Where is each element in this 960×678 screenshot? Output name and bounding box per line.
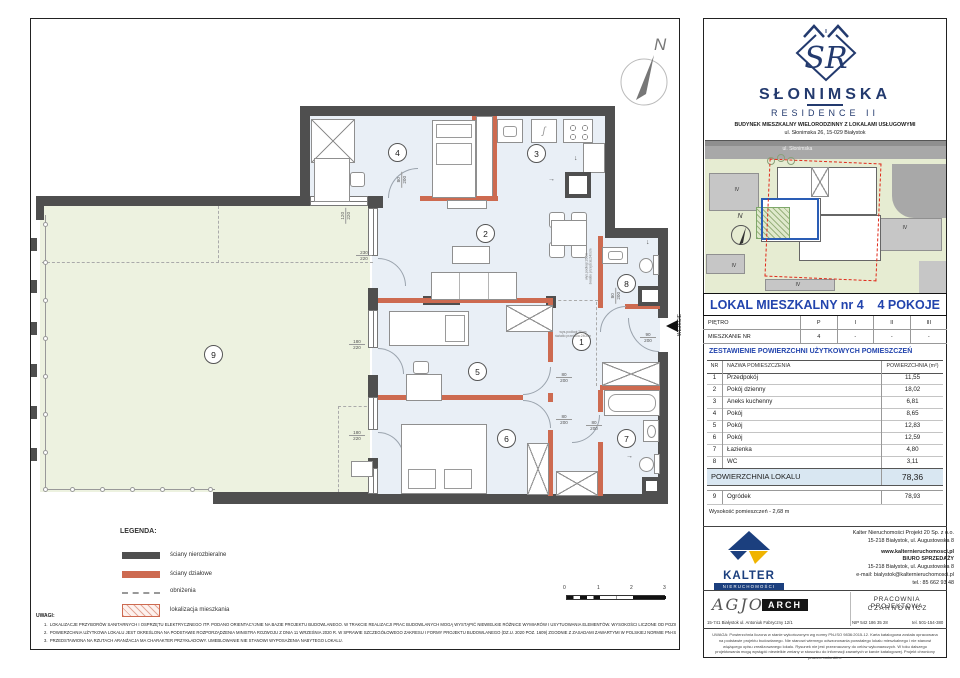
bathroom-sink [643, 420, 659, 442]
fence-post [31, 280, 37, 293]
dimension-label: 80200 [610, 288, 622, 304]
coffee-table [452, 246, 490, 264]
vent-arrow-icon: → [548, 176, 555, 183]
divider [703, 526, 947, 527]
legend-swatch-location [122, 604, 160, 617]
desk [314, 158, 350, 202]
vent-arrow-icon: → [626, 453, 633, 460]
building-description: BUDYNEK MIESZKALNY WIELORODZINNY Z LOKAL… [703, 122, 947, 128]
floor-cell: P [801, 316, 838, 329]
ventilation-shaft [642, 477, 661, 495]
legend-swatch-partition [122, 571, 160, 578]
contact-line: BIURO SPRZEDAŻY [853, 556, 954, 564]
unit-rooms: 4 POKOJE [877, 298, 940, 312]
tech-note: wys.podłogi:26cm światło przejścia:240cm [585, 243, 594, 289]
dim-bottom: 220 [349, 344, 365, 350]
stove [563, 119, 593, 143]
wardrobe [311, 119, 355, 163]
toilet-bowl [639, 258, 653, 273]
fence-post-dot [43, 450, 48, 455]
gray-building [709, 173, 759, 211]
dimension-label: 120220 [340, 208, 352, 224]
garden-name: Ogródek [723, 491, 881, 504]
sink-basin [608, 251, 623, 260]
area-table-title: ZESTAWIENIE POWIERZCHNI UŻYTKOWYCH POMIE… [709, 348, 912, 355]
table-row: PIĘTRO P I II III [703, 316, 947, 330]
block-label: IV [735, 187, 740, 193]
fridge [583, 143, 605, 173]
scale-bar [566, 595, 665, 600]
room-number: 6 [504, 434, 509, 444]
arch-logo: ARCH [762, 599, 808, 611]
logo-underline [807, 104, 843, 106]
bed [432, 120, 476, 198]
sr-monogram-logo: SR II [789, 22, 859, 84]
scale-tick [616, 596, 617, 599]
legend-swatch-structural [122, 552, 160, 559]
wall-segment [605, 106, 615, 236]
disclaimer-text: UWAGA: Powierzchnia liczona w stanie wyk… [703, 629, 947, 664]
fence-post-dot [130, 487, 135, 492]
legend-title: LEGENDA: [120, 528, 157, 535]
wall-segment [300, 106, 615, 116]
tech-note-line: światło przejścia:240cm [589, 243, 593, 289]
dim-bottom: 220 [356, 255, 372, 261]
room-number: 9 [211, 350, 216, 360]
catalog-sheet: ʃ → ↓ → ↓ [0, 0, 960, 678]
partition-wall [378, 395, 523, 400]
room-marker-6: 6 [497, 429, 516, 448]
vent-arrow-icon: ↓ [574, 155, 578, 162]
lowered-ceiling-line [596, 302, 597, 386]
note-item: 3. PRZEDSTAWIONA NA RZUTACH ARANŻACJA MA… [44, 638, 676, 643]
pillow [408, 469, 436, 489]
building-address: ul. Słonimska 26, 15-029 Białystok [703, 130, 947, 136]
unit-title: LOKAL MIESZKALNY nr 4 [710, 298, 864, 312]
double-bed [401, 424, 487, 494]
floor-cell: - [838, 330, 875, 343]
dimension-label: 180220 [349, 430, 365, 442]
note-number: 1. [44, 622, 48, 627]
north-arrow-icon: N [612, 28, 678, 112]
floor-cell: II [874, 316, 911, 329]
dining-table [551, 220, 587, 246]
dimension-label: 80200 [586, 420, 602, 432]
fence-post [31, 448, 37, 461]
wardrobe [556, 471, 598, 496]
plot-boundary [764, 159, 881, 282]
fence-post-dot [208, 487, 213, 492]
divider [850, 592, 851, 626]
fence-post-dot [43, 487, 48, 492]
fence-post-dot [43, 374, 48, 379]
legend-label: ściany działowe [170, 571, 212, 577]
unit-header: LOKAL MIESZKALNY nr 4 4 POKOJE [703, 293, 947, 316]
pillow [444, 469, 472, 489]
vent-arrow-icon: ↓ [646, 239, 650, 246]
dim-bottom: 200 [586, 425, 602, 431]
sink-basin [503, 126, 517, 137]
dim-bottom: 220 [346, 208, 352, 224]
toilet-tank [654, 454, 660, 474]
scale-segment [633, 596, 666, 599]
dim-bottom: 220 [349, 435, 365, 441]
note-text: POWIERZCHNIA UŻYTKOWA LOKALU JEST OKREŚL… [50, 630, 676, 635]
legend-label: obniżenia [170, 588, 196, 594]
fence-post-dot [100, 487, 105, 492]
scale-label: 2 [630, 585, 633, 591]
disclaimer-box: UWAGA: Powierzchnia liczona w stanie wyk… [703, 628, 947, 657]
fence-post-dot [43, 298, 48, 303]
dim-bottom: 200 [402, 172, 408, 188]
contact-line: 15-218 Białystok, ul. Augustowska 8 [853, 564, 954, 572]
fence-post [31, 238, 37, 251]
note-item: 1. LOKALIZACJE PRZYBORÓW SANITARNYCH I O… [44, 622, 676, 627]
window [368, 310, 378, 348]
floor-cell: - [911, 330, 948, 343]
room-marker-2: 2 [476, 224, 495, 243]
note-text: LOKALIZACJE PRZYBORÓW SANITARNYCH I OSPR… [50, 622, 676, 627]
tech-note-line: światło przejścia:240cm [550, 334, 596, 338]
wall-segment [368, 375, 378, 397]
dim-bottom: 200 [556, 377, 572, 383]
contact-line: e-mail: bialystok@kalternieruchomosci.pl [853, 572, 954, 580]
site-map: ul. Słonimska IV IV IV IV N [705, 140, 946, 295]
kalter-logo-icon [728, 531, 770, 569]
dimension-label: 230220 [356, 250, 372, 262]
desk [406, 374, 442, 401]
bedside-table [351, 461, 373, 477]
map-north-label: N [738, 213, 743, 220]
lowered-ceiling-line [553, 300, 598, 301]
floor-cell: 4 [801, 330, 838, 343]
contact-line: 15-218 Białystok, ul. Augustowska 8 [853, 538, 954, 546]
room-number: 8 [624, 279, 629, 289]
wall-segment [213, 492, 373, 504]
fence-post-dot [43, 222, 48, 227]
dimension-label: 180220 [349, 339, 365, 351]
legend-label: ściany nierozbieralne [170, 552, 226, 558]
legend-label: lokalizacja mieszkania [170, 607, 229, 613]
room-number: 2 [483, 229, 488, 239]
block-label: IV [903, 225, 908, 231]
wall-segment [375, 196, 383, 208]
entrance-label: WEJŚCIE [677, 303, 683, 347]
total-row: POWIERZCHNIA LOKALU 78,36 [707, 468, 943, 486]
fence-line [45, 215, 46, 490]
notes-title: UWAGI: [36, 613, 55, 619]
street-road-edge [705, 141, 946, 146]
room-marker-9: 9 [204, 345, 223, 364]
partition-wall [548, 393, 553, 402]
toilet-tank [653, 255, 659, 275]
divider [703, 590, 947, 591]
kitchen-sink [497, 119, 523, 143]
cabinet [476, 116, 493, 198]
wardrobe [506, 305, 553, 332]
floor-cell: III [911, 316, 948, 329]
fence-post-dot [43, 336, 48, 341]
lowered-ceiling-line [42, 262, 373, 263]
dim-bottom: 200 [556, 419, 572, 425]
studio-name-2: C Z A R N O W I C Z [852, 605, 942, 612]
kalter-contact: Kalter Nieruchomości Projekt 20 Sp. z o.… [853, 530, 954, 588]
garden-nr: 9 [707, 491, 723, 504]
dimension-label: 80200 [396, 172, 408, 188]
wall-segment [370, 494, 668, 504]
hob-icon: ʃ [531, 119, 557, 143]
room-number: 4 [395, 148, 400, 158]
lowered-ceiling-line [338, 406, 372, 407]
scale-label: 0 [563, 585, 566, 591]
roof-mark: II [825, 29, 828, 35]
wall-segment [36, 196, 312, 206]
room-number: 3 [534, 149, 539, 159]
room-marker-3: 3 [527, 144, 546, 163]
side-road [892, 164, 946, 218]
note-number: 3. [44, 638, 48, 643]
svg-text:SR: SR [804, 41, 847, 76]
pillow [445, 315, 465, 342]
lowered-ceiling-line [338, 406, 339, 492]
closet [602, 362, 660, 386]
note-text: PRZEDSTAWIONA NA RZUTACH ARANŻACJA MA CH… [50, 638, 343, 643]
agjo-address: 15-741 Białystok ul. Antoniuk Fabryczny … [707, 620, 793, 625]
floor-label: PIĘTRO [703, 316, 801, 329]
studio-tel: tel. 501-154-380 [912, 620, 943, 625]
table-row: MIESZKANIE NR 4 - - - [703, 330, 947, 343]
wall-segment [300, 106, 310, 206]
studio-nip: NIP 542 186 35 28 [852, 620, 888, 625]
height-note: Wysokość pomieszczeń - 2,68 m [709, 509, 789, 515]
dimension-label: 80200 [556, 372, 572, 384]
gray-building [876, 218, 942, 251]
bathtub-basin [608, 394, 656, 412]
gray-building [919, 261, 946, 294]
sofa [431, 272, 517, 300]
window [368, 208, 378, 256]
room-number: 7 [624, 434, 629, 444]
tech-note: wys.podłogi:26cm światło przejścia:240cm [550, 330, 596, 339]
lowered-ceiling-line [218, 206, 219, 263]
ventilation-shaft [565, 172, 591, 198]
fence-post-dot [43, 412, 48, 417]
fence-post-dot [190, 487, 195, 492]
room-number: 5 [475, 367, 480, 377]
bathtub [604, 390, 660, 416]
contact-line: Kalter Nieruchomości Projekt 20 Sp. z o.… [853, 530, 954, 538]
room-marker-5: 5 [468, 362, 487, 381]
room-marker-4: 4 [388, 143, 407, 162]
floor-table: PIĘTRO P I II III MIESZKANIE NR 4 - - - [703, 316, 947, 344]
note-item: 2. POWIERZCHNIA UŻYTKOWA LOKALU JEST OKR… [44, 630, 676, 635]
block-label: IV [796, 282, 801, 288]
agjo-logo: AGJO [712, 595, 764, 614]
dim-bottom: 200 [616, 288, 622, 304]
block-label: IV [732, 263, 737, 269]
sink-basin [647, 425, 656, 438]
garden-row: 9 Ogródek 78,93 [707, 490, 943, 505]
wardrobe [527, 443, 549, 495]
chair [350, 172, 365, 187]
ventilation-shaft [638, 286, 662, 306]
logo-subtitle: RESIDENCE II [703, 108, 947, 118]
scale-label: 1 [597, 585, 600, 591]
total-value: 78,36 [881, 469, 943, 485]
street-label: ul. Słonimska [783, 146, 813, 152]
chair [413, 361, 429, 374]
partition-wall [598, 442, 603, 496]
room-marker-7: 7 [617, 429, 636, 448]
partition-wall [598, 390, 603, 412]
window [368, 397, 378, 430]
bed [389, 311, 469, 346]
apartment-nr-label: MIESZKANIE NR [703, 330, 801, 343]
fence-post-dot [160, 487, 165, 492]
wall-segment [368, 288, 378, 310]
scale-label: 3 [663, 585, 666, 591]
wall-segment [36, 196, 44, 220]
pillow [436, 124, 472, 138]
logo-title: SŁONIMSKA [703, 86, 947, 104]
map-compass-needle [733, 221, 751, 247]
fence-post [31, 322, 37, 335]
dim-bottom: 200 [640, 337, 656, 343]
fence-post-dot [70, 487, 75, 492]
wc-sink [602, 247, 628, 264]
contact-line: tel.: 85 662 93 48 [853, 580, 954, 588]
total-label: POWIERZCHNIA LOKALU [707, 469, 881, 485]
legend-swatch-lowered [122, 592, 160, 594]
gray-building [706, 254, 745, 274]
fence-post [31, 364, 37, 377]
blanket [436, 143, 472, 165]
dimension-label: 80200 [556, 414, 572, 426]
tv-bench [447, 200, 487, 209]
scale-segment [567, 596, 600, 599]
fence-post-dot [43, 260, 48, 265]
fence-post [31, 406, 37, 419]
toilet-bowl [639, 457, 654, 472]
garden-area-value: 78,93 [881, 491, 943, 504]
dimension-label: 90200 [640, 332, 656, 344]
note-number: 2. [44, 630, 48, 635]
kalter-name: KALTER [712, 570, 786, 582]
floor-cell: I [838, 316, 875, 329]
svg-text:N: N [654, 35, 667, 54]
floor-cell: - [874, 330, 911, 343]
